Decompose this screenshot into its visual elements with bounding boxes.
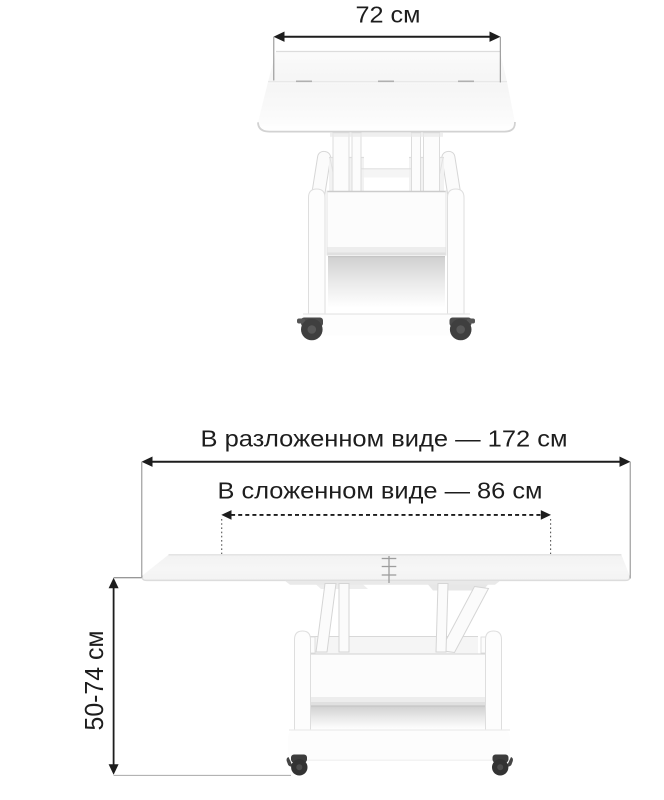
svg-text:50-74 см: 50-74 см [79, 631, 109, 731]
svg-text:72 см: 72 см [356, 2, 421, 28]
svg-text:В разложенном виде — 172 см: В разложенном виде — 172 см [201, 426, 568, 452]
svg-text:В сложенном виде — 86 см: В сложенном виде — 86 см [218, 478, 543, 504]
